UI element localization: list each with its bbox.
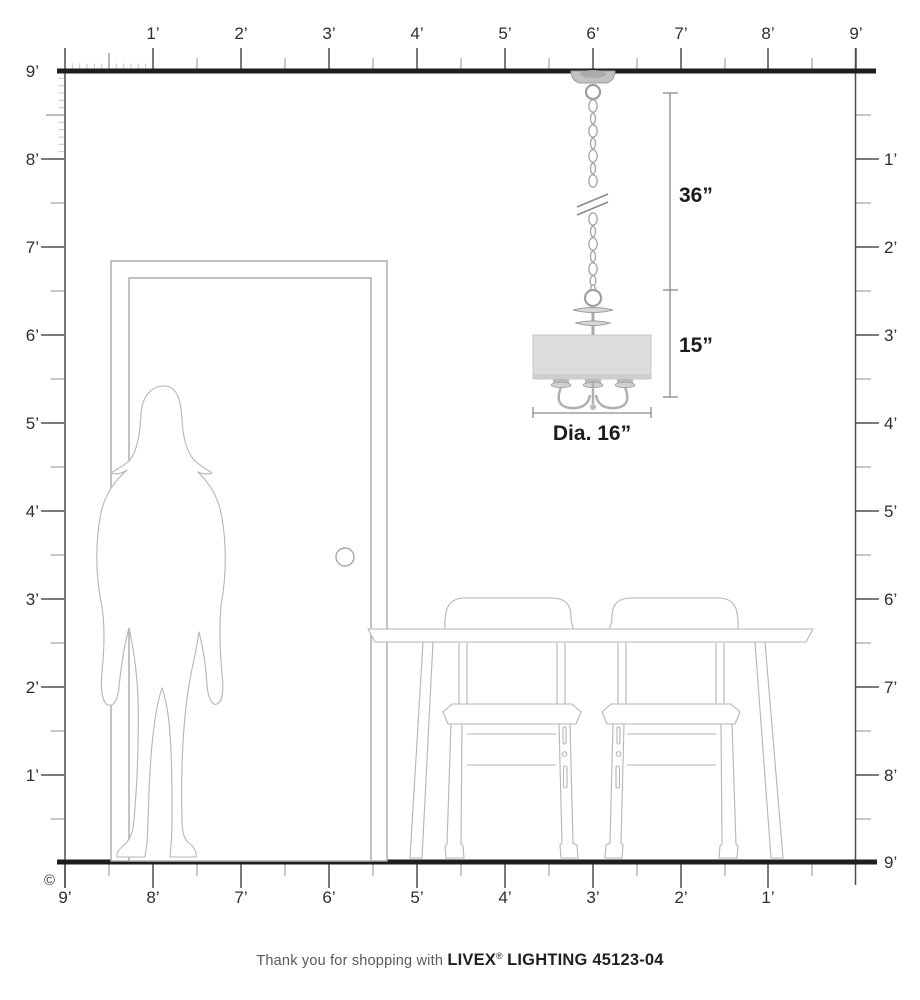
- canopy-shading: [580, 70, 606, 78]
- ruler-label: 3’: [322, 24, 335, 43]
- ruler-label: 2’: [234, 24, 247, 43]
- ruler-label: 8’: [884, 766, 897, 785]
- diameter-value: Dia. 16”: [553, 422, 631, 445]
- ruler-label: 2’: [674, 888, 687, 907]
- ruler-label: 9’: [849, 24, 862, 43]
- ruler-label: 3’: [884, 326, 897, 345]
- ruler-label: 5’: [26, 414, 39, 433]
- fixture-height-value: 15”: [679, 334, 713, 357]
- ruler-label: 8’: [146, 888, 159, 907]
- dining-table: [368, 629, 813, 858]
- ruler-label: 7’: [884, 678, 897, 697]
- fixture-disc-upper: [573, 308, 613, 313]
- chair-2-back: [608, 598, 738, 631]
- ruler-label: 6’: [26, 326, 39, 345]
- chair-1-base: [443, 643, 581, 858]
- ruler-label: 6’: [884, 590, 897, 609]
- canopy-loop: [586, 85, 600, 99]
- ruler-label: 1’: [761, 888, 774, 907]
- table-top: [368, 629, 813, 642]
- ruler-label: 4’: [498, 888, 511, 907]
- registered-mark: ®: [496, 951, 503, 961]
- ruler-label: 9’: [58, 888, 71, 907]
- ruler-label: 1’: [884, 150, 897, 169]
- ruler-label: 6’: [586, 24, 599, 43]
- fixture-loop: [585, 290, 601, 306]
- hang-length-value: 36”: [679, 184, 713, 207]
- ruler-label: 1’: [146, 24, 159, 43]
- ruler-label: 8’: [26, 150, 39, 169]
- top-ruler: 1’2’3’4’5’6’7’8’9’: [72, 24, 862, 69]
- ruler-label: 3’: [586, 888, 599, 907]
- footer-text: Thank you for shopping with LIVEX® LIGHT…: [0, 951, 920, 970]
- door-knob: [336, 548, 354, 566]
- drum-shade-bottom-band: [534, 374, 651, 379]
- chair-1-back: [445, 598, 575, 631]
- ruler-label: 8’: [761, 24, 774, 43]
- ruler-label: 2’: [26, 678, 39, 697]
- room-scale-diagram: 1’2’3’4’5’6’7’8’9’ 9’8’7’6’5’4’3’2’1’ 1’…: [0, 0, 920, 945]
- ruler-label: 7’: [26, 238, 39, 257]
- product-number: LIGHTING 45123-04: [507, 951, 664, 969]
- pendant-light: [533, 70, 651, 410]
- chair-2-base: [602, 643, 740, 858]
- table-leg-right: [755, 642, 783, 858]
- ruler-label: 3’: [26, 590, 39, 609]
- drum-shade: [533, 335, 651, 379]
- ruler-label: 5’: [884, 502, 897, 521]
- copyright-symbol: ©: [44, 872, 55, 889]
- ruler-label: 1’: [26, 766, 39, 785]
- right-ruler: 1’2’3’4’5’6’7’8’9’: [856, 115, 897, 872]
- ruler-label: 2’: [884, 238, 897, 257]
- bottom-finial: [590, 404, 596, 410]
- table-leg-left: [410, 642, 433, 858]
- ruler-label: 5’: [498, 24, 511, 43]
- ruler-label: 7’: [234, 888, 247, 907]
- bottom-ruler: 9’8’7’6’5’4’3’2’1’: [58, 864, 812, 907]
- ruler-label: 9’: [884, 853, 897, 872]
- ruler-label: 4’: [410, 24, 423, 43]
- ruler-label: 7’: [674, 24, 687, 43]
- ruler-label: 5’: [410, 888, 423, 907]
- brand-name: LIVEX: [447, 951, 496, 969]
- left-ruler: 9’8’7’6’5’4’3’2’1’: [26, 62, 64, 819]
- ruler-label: 4’: [26, 502, 39, 521]
- scale-diagram-page: 1’2’3’4’5’6’7’8’9’ 9’8’7’6’5’4’3’2’1’ 1’…: [0, 0, 920, 1000]
- ruler-label: 6’: [322, 888, 335, 907]
- ruler-label: 9’: [26, 62, 39, 81]
- fixture-disc-lower: [576, 321, 610, 326]
- ruler-label: 4’: [884, 414, 897, 433]
- footer-prefix: Thank you for shopping with: [256, 953, 443, 969]
